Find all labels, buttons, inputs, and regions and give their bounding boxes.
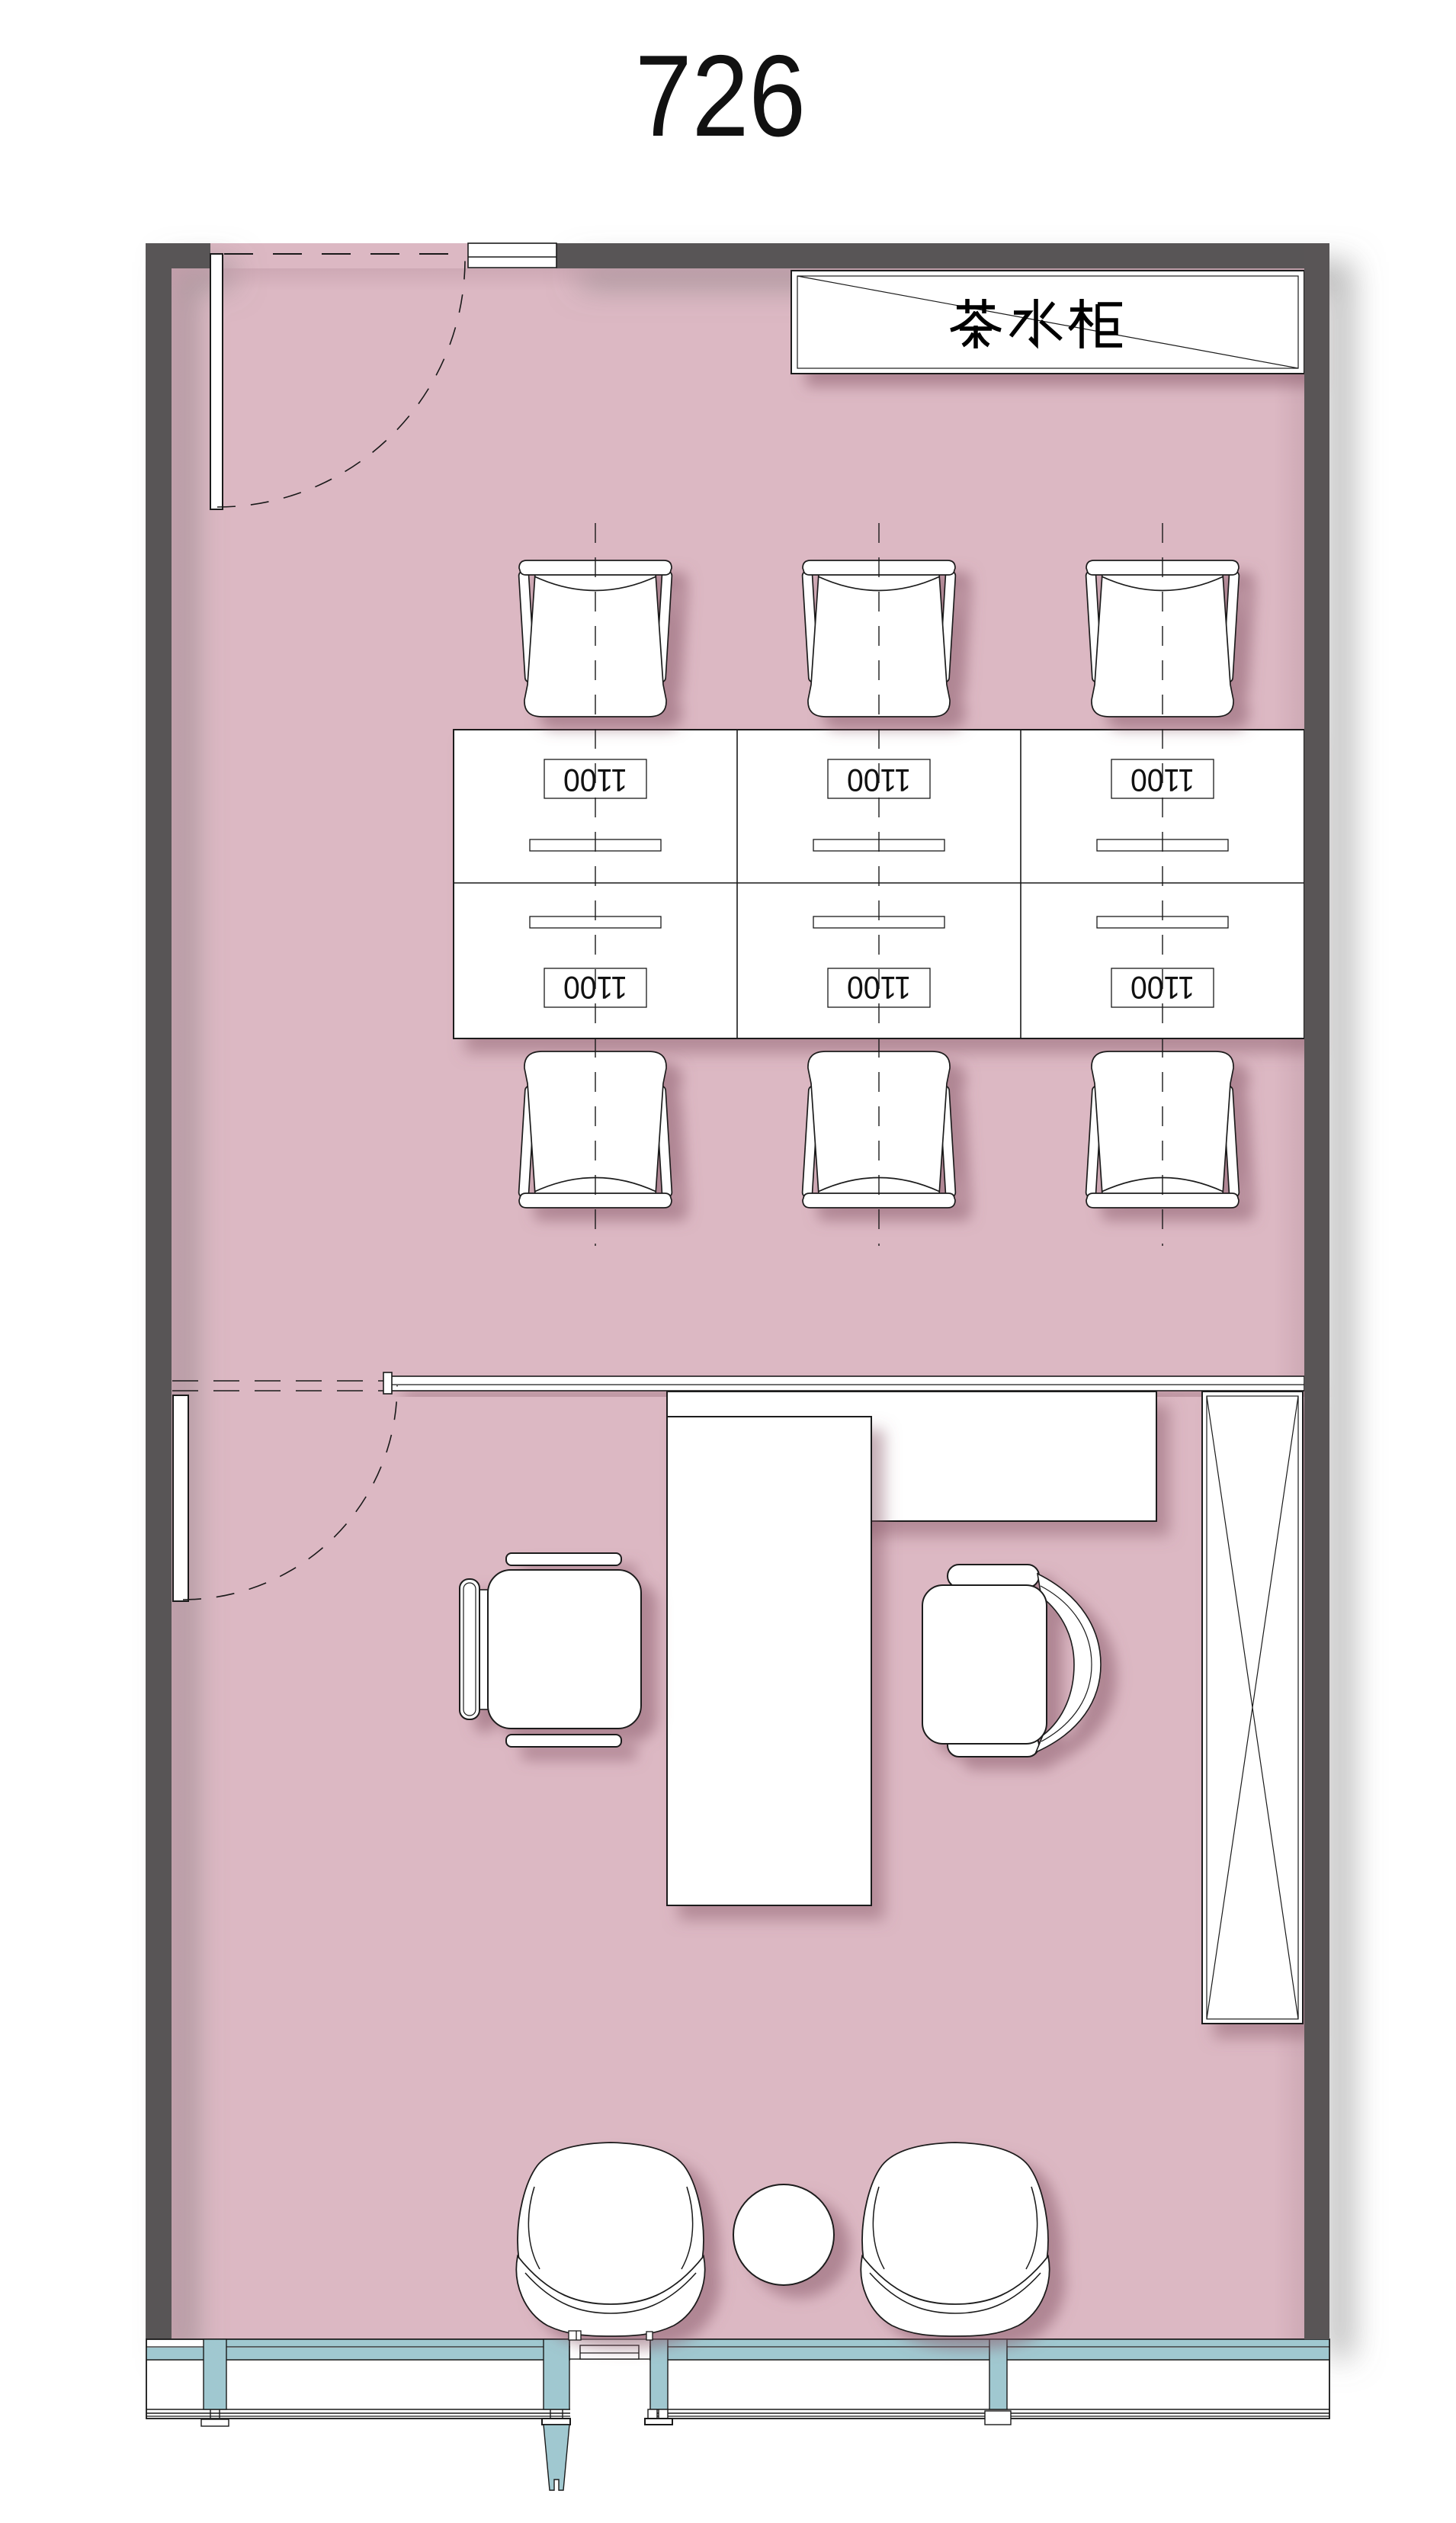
svg-text:726: 726 — [635, 31, 806, 161]
